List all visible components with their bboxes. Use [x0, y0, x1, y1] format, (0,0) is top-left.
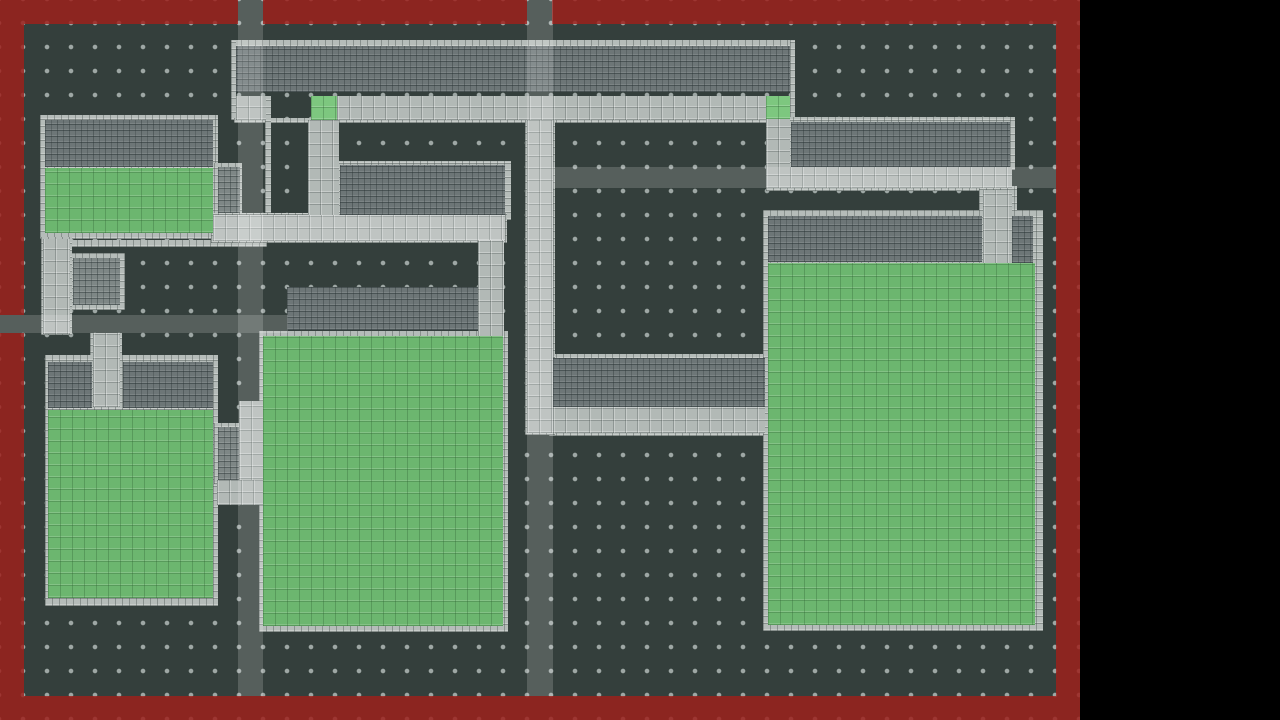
inner-courtyard-brick [218, 167, 240, 213]
grass-field [48, 410, 213, 598]
building-wall-bricks [123, 362, 213, 408]
map-boundary-wall [0, 24, 24, 315]
grass-entry-tile [766, 96, 790, 119]
building-wall-bricks [340, 165, 505, 215]
road-overlay-band [527, 0, 553, 696]
map-boundary-wall [0, 696, 1080, 720]
grass-field [45, 168, 213, 233]
grass-field [768, 263, 1035, 625]
game-map-canvas[interactable] [0, 0, 1080, 720]
building-wall-bricks [48, 362, 92, 408]
grass-field [263, 336, 503, 626]
map-boundary-wall [552, 0, 1080, 24]
building-wall-bricks [236, 46, 790, 92]
building-wall-bricks [287, 287, 478, 330]
road-overlay-band [213, 215, 505, 241]
inner-courtyard-brick [73, 258, 120, 305]
road-overlay-band [0, 315, 288, 333]
game-screen [0, 0, 1280, 720]
sidewalk-path [337, 96, 790, 120]
road-overlay-band [238, 0, 263, 696]
building-wall-bricks [768, 216, 982, 262]
building-wall-bricks [791, 122, 1010, 167]
road-overlay-band [553, 167, 1056, 188]
sidewalk-path [553, 407, 765, 433]
sidewalk-path [983, 190, 1012, 267]
building-wall-bricks [1012, 216, 1033, 263]
inner-courtyard-brick [218, 427, 240, 480]
building-wall-bricks [553, 358, 765, 407]
offscreen-letterbox [1080, 0, 1280, 720]
sidewalk-path [308, 120, 339, 217]
sidewalk-path [478, 240, 504, 338]
map-boundary-wall [1056, 24, 1080, 696]
grass-entry-tile [311, 96, 337, 120]
map-boundary-wall [263, 0, 527, 24]
sidewalk-path [93, 333, 120, 407]
map-boundary-wall [0, 333, 24, 696]
sidewalk-frame-tile [790, 40, 795, 120]
building-wall-bricks [45, 120, 213, 167]
map-boundary-wall [0, 0, 238, 24]
